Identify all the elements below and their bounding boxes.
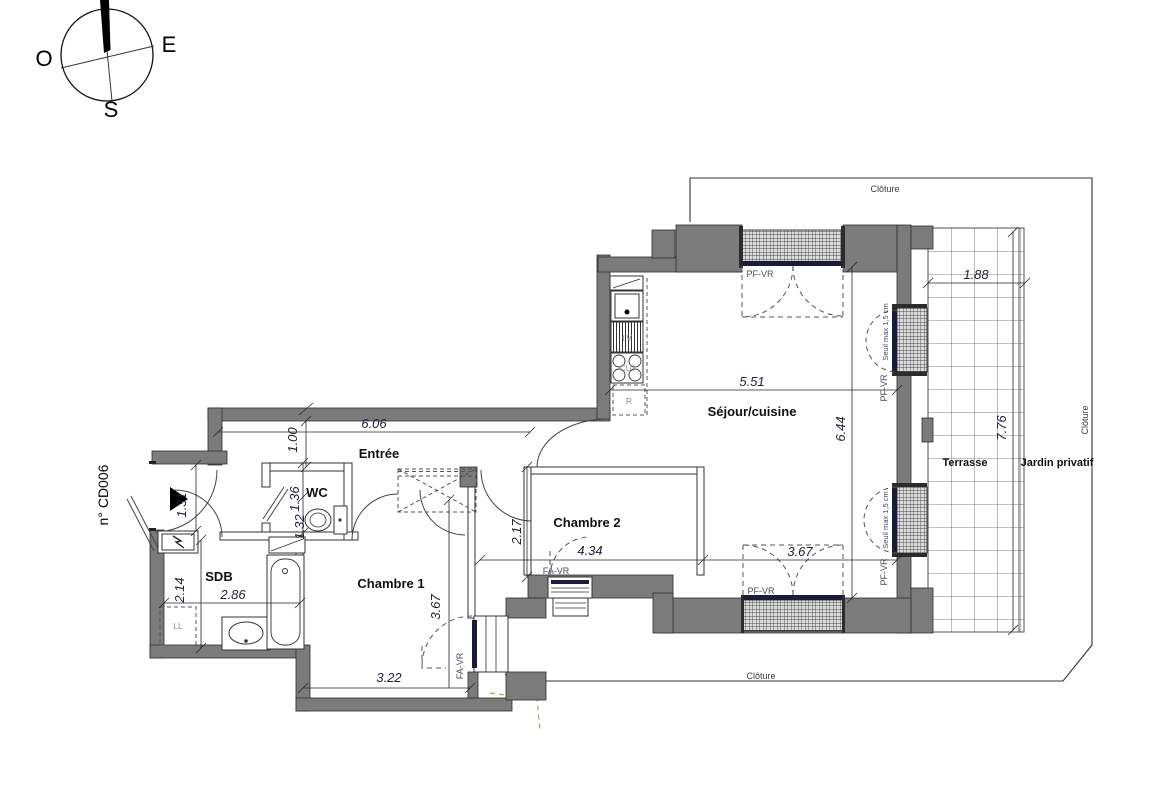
dim-wc-width: 1.32 <box>292 514 307 540</box>
room-label-chambre1: Chambre 1 <box>357 576 424 591</box>
window-tag-sejour-south: PF-VR <box>748 586 776 596</box>
dim-hall-width: 1.00 <box>285 427 300 453</box>
room-label-jardin: Jardin privatif <box>1021 457 1094 469</box>
washing-machine: LL <box>160 607 196 645</box>
room-label-chambre2: Chambre 2 <box>553 515 620 530</box>
threshold-note-upper: Seuil max 1,5 cm <box>881 303 890 361</box>
room-label-wc: WC <box>306 485 328 500</box>
window-tag-east-upper: PF-VR <box>879 374 889 402</box>
window-tag-sejour-north: PF-VR <box>747 269 775 279</box>
dim-entry-door: 1.31 <box>174 492 189 517</box>
cooktop: CUI <box>611 353 643 383</box>
fridge: R <box>613 385 645 415</box>
threshold-note-lower: Seuil max 1,5 cm <box>881 491 890 549</box>
room-label-entree: Entrée <box>359 446 399 461</box>
dishwasher: LV <box>611 322 643 352</box>
kitchen-counter <box>610 276 643 290</box>
window-tag-east-lower: PF-VR <box>879 558 889 586</box>
compass-east-label: E <box>162 32 177 57</box>
dim-terrasse-length: 7.76 <box>994 415 1009 441</box>
terrace-tiles <box>928 228 1024 632</box>
room-label-sdb: SDB <box>205 569 232 584</box>
dim-sdb-length: 2.86 <box>219 587 246 602</box>
fridge-label: R <box>626 396 632 406</box>
dim-chambre1-width: 3.22 <box>376 670 402 685</box>
compass-west-label: O <box>35 46 52 71</box>
fence-label-top: Clôture <box>870 184 899 194</box>
dim-sejour-south: 3.67 <box>787 544 813 559</box>
kitchen-sink <box>611 291 643 321</box>
dim-chambre2-length: 4.34 <box>577 543 602 558</box>
room-label-sejour: Séjour/cuisine <box>708 404 797 419</box>
dim-chambre2-depth: 2.17 <box>509 519 524 546</box>
window-sejour-east-upper <box>892 304 927 376</box>
dishwasher-label: LV <box>622 333 632 343</box>
window-tag-chambre1: FA-VR <box>455 652 465 679</box>
compass-rose-icon: O E S <box>35 0 176 122</box>
floor-plan-page: O E S <box>0 0 1157 800</box>
window-chambre2 <box>548 577 592 616</box>
electrical-panel <box>158 531 198 553</box>
door-swings <box>127 419 608 551</box>
window-sejour-east-lower <box>892 483 927 557</box>
window-tag-chambre2: FA-VR <box>543 566 570 576</box>
dim-entree-length: 6.06 <box>361 416 387 431</box>
unit-number-label: n° CD006 <box>95 464 111 525</box>
room-label-terrasse: Terrasse <box>942 457 987 469</box>
dim-sejour-width: 5.51 <box>739 374 764 389</box>
compass-south-label: S <box>104 97 119 122</box>
dim-sejour-length: 6.44 <box>833 416 848 441</box>
cooktop-label: CUI <box>620 363 635 373</box>
dim-terrasse-width: 1.88 <box>963 267 989 282</box>
dim-chambre1-length: 3.67 <box>428 594 443 620</box>
toilet <box>305 506 347 534</box>
floor-plan-svg: O E S <box>0 0 1157 800</box>
dim-sdb-depth: 2.14 <box>172 577 187 603</box>
fence-label-bottom: Clôture <box>746 671 775 681</box>
fence-label-right: Clôture <box>1080 405 1090 434</box>
washbasin <box>222 617 270 650</box>
washing-machine-label: LL <box>173 621 183 631</box>
window-chambre1 <box>472 616 508 672</box>
window-sejour-north <box>739 226 845 268</box>
dim-wc-length: 1.36 <box>287 486 302 512</box>
window-sejour-south <box>741 595 845 633</box>
